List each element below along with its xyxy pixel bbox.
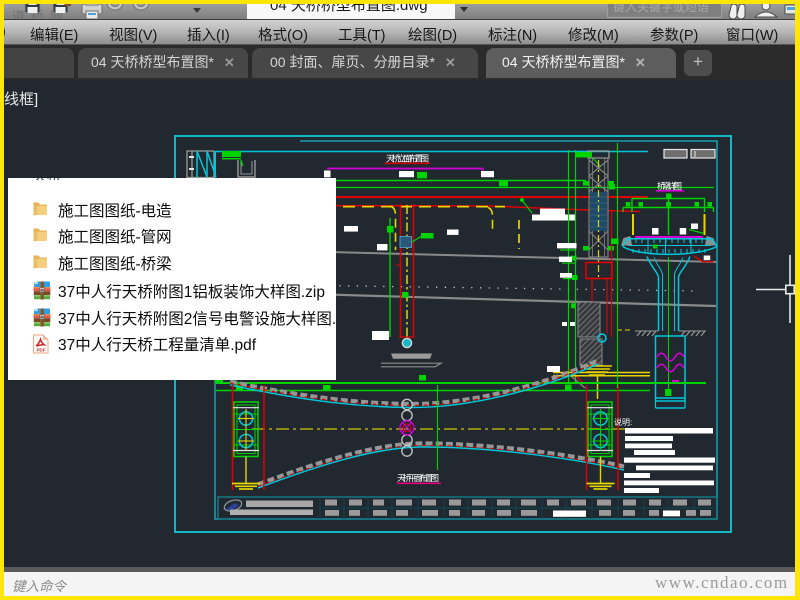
svg-text:天桥平面布置图: 天桥平面布置图 (397, 473, 439, 483)
svg-text:PDF: PDF (37, 348, 46, 353)
svg-text:天桥立面布置图: 天桥立面布置图 (386, 154, 429, 164)
svg-text:说明:: 说明: (614, 417, 632, 427)
svg-text:桥墩详图: 桥墩详图 (657, 181, 682, 191)
